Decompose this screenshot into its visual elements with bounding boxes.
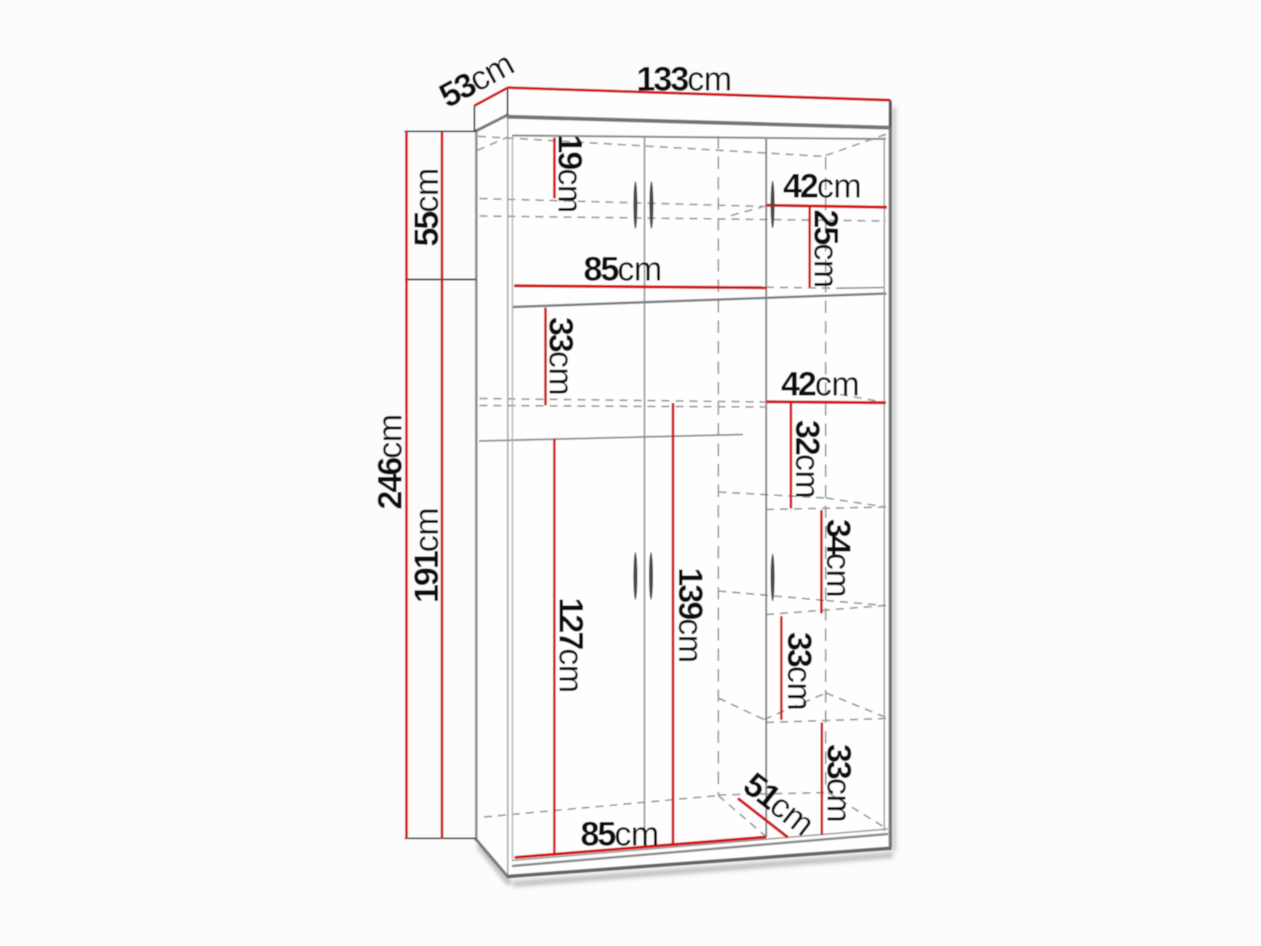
svg-text:85cm: 85cm xyxy=(581,816,659,854)
svg-text:25cm: 25cm xyxy=(807,210,845,288)
svg-text:33cm: 33cm xyxy=(820,744,858,822)
svg-text:85cm: 85cm xyxy=(584,251,662,289)
svg-text:33cm: 33cm xyxy=(780,632,818,710)
svg-text:19cm: 19cm xyxy=(551,135,589,213)
svg-text:42cm: 42cm xyxy=(781,366,859,404)
svg-text:55cm: 55cm xyxy=(408,168,446,246)
svg-text:139cm: 139cm xyxy=(671,568,709,663)
svg-text:33cm: 33cm xyxy=(542,317,580,395)
svg-text:246cm: 246cm xyxy=(372,414,410,509)
svg-text:191cm: 191cm xyxy=(408,508,446,603)
svg-text:133cm: 133cm xyxy=(637,61,732,99)
svg-text:34cm: 34cm xyxy=(819,519,857,597)
svg-text:127cm: 127cm xyxy=(552,598,590,693)
svg-text:42cm: 42cm xyxy=(783,168,861,206)
svg-text:32cm: 32cm xyxy=(788,420,826,498)
